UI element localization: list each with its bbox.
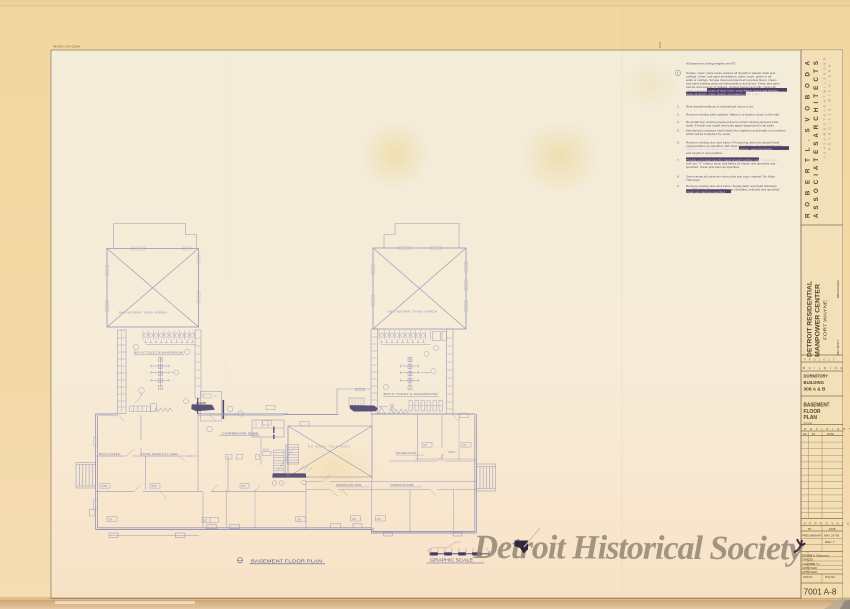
svg-text:Ritter T.: Ritter T. [825, 540, 835, 544]
svg-text:TRUNK ROOM & P.T. AREA: TRUNK ROOM & P.T. AREA [141, 452, 178, 456]
svg-text:46-WS-134-2054: 46-WS-134-2054 [53, 45, 80, 49]
svg-text:6.: 6. [677, 141, 680, 145]
svg-text:BY: BY [812, 432, 816, 436]
svg-text:NO: NO [803, 432, 807, 436]
svg-text:JOB NO.: JOB NO. [803, 576, 813, 579]
svg-text:SCALE: SCALE [804, 421, 813, 425]
svg-text:DATE: DATE [829, 527, 836, 531]
svg-text:FORT WAYNE: FORT WAYNE [823, 300, 828, 340]
svg-text:DETROIT RESIDENTIAL: DETROIT RESIDENTIAL [808, 281, 814, 357]
svg-text:307: 307 [203, 520, 208, 523]
svg-text:3.: 3. [677, 113, 680, 117]
svg-text:DETROIT: DETROIT [836, 339, 840, 355]
svg-text:BOILER ROOM: BOILER ROOM [396, 451, 417, 455]
svg-text:NO WORK THIS AREA: NO WORK THIS AREA [308, 445, 351, 449]
svg-text:9.: 9. [677, 184, 680, 188]
svg-text:D E T R O I T 1 9 , M I C: D E T R O I T 1 9 , M I C H I G A N [828, 65, 832, 150]
svg-text:A P P R O V A L S: A P P R O V A L S [804, 521, 850, 525]
svg-text:FLOOR: FLOOR [804, 409, 821, 415]
svg-text:BASEMENT: BASEMENT [804, 403, 831, 409]
svg-text:CORRIDOR 305B: CORRIDOR 305B [222, 431, 259, 435]
svg-text:2.: 2. [677, 105, 680, 109]
svg-text:APPROVED: APPROVED [802, 570, 817, 574]
svg-text:stalls. Provide and install n: stalls. Provide and install new toilet p… [686, 124, 775, 128]
svg-text:308 A & B: 308 A & B [804, 387, 826, 393]
svg-text:MANPOWER CENTER: MANPOWER CENTER [816, 283, 822, 357]
svg-text:A S S O C I A T E S A R C H: A S S O C I A T E S A R C H I T E C T S [813, 61, 820, 218]
svg-text:7.: 7. [677, 158, 680, 162]
svg-text:110.5: 110.5 [263, 449, 269, 452]
svg-text:5.: 5. [677, 129, 680, 133]
svg-text:Remove existing toilet partiti: Remove existing toilet partition. Make t… [686, 113, 780, 117]
svg-text:304: 304 [241, 485, 246, 488]
svg-text:305A: 305A [151, 485, 157, 488]
svg-text:1 0 4 5 6 W E S T E I G H: 1 0 4 5 6 W E S T E I G H T M I L E R O … [823, 58, 827, 158]
svg-text:New drywall partitions in mec: New drywall partitions in mechanical roo… [686, 105, 754, 109]
svg-text:BUILDING: BUILDING [804, 380, 825, 386]
svg-text:which will be furnished by own: which will be furnished by owner. [686, 132, 731, 136]
svg-text:B U I L D I N G: B U I L D I N G [803, 366, 844, 370]
svg-text:314: 314 [423, 444, 428, 447]
svg-text:and length of new partition.: and length of new partition. [686, 151, 723, 155]
svg-text:1.: 1. [677, 71, 680, 75]
svg-text:7001 A-8: 7001 A-8 [804, 587, 837, 597]
svg-text:305B: 305B [101, 485, 107, 488]
svg-text:R E V I S I O N S: R E V I S I O N S [804, 427, 850, 431]
svg-text:306: 306 [108, 518, 113, 521]
svg-text:4.: 4. [677, 120, 680, 124]
svg-text:All basement ceiling heights a: All basement ceiling heights are 8'6" [686, 62, 736, 66]
svg-text:PRELIMINARY: PRELIMINARY [802, 534, 822, 538]
svg-text:CORRIDOR 308B: CORRIDOR 308B [390, 483, 414, 487]
svg-text:clean all grouts, water closet: clean all grouts, water closets, and was… [686, 92, 760, 96]
svg-text:MICHIGAN: MICHIGAN [836, 280, 840, 298]
svg-text:DATE: DATE [827, 432, 834, 436]
svg-text:WASHROOM 305B: WASHROOM 305B [336, 483, 361, 487]
svg-text:MAY 29 '69: MAY 29 '69 [824, 534, 839, 538]
svg-text:310: 310 [377, 518, 382, 521]
svg-text:302: 302 [462, 444, 467, 447]
svg-text:309: 309 [352, 518, 357, 521]
svg-text:Clean and paint as specified.: Clean and paint as specified. [686, 190, 726, 194]
svg-text:BASEMENT FLOOR PLAN: BASEMENT FLOOR PLAN [251, 558, 322, 563]
svg-text:PLAN: PLAN [804, 415, 818, 421]
svg-text:GRAPHIC SCALE: GRAPHIC SCALE [430, 557, 473, 562]
svg-text:BY: BY [808, 527, 812, 531]
svg-text:NO WORK THIS AREA: NO WORK THIS AREA [119, 311, 167, 315]
svg-text:P R O J E C T: P R O J E C T [804, 357, 836, 361]
svg-text:308: 308 [297, 519, 302, 522]
svg-text:FILE NO.: FILE NO. [825, 576, 836, 579]
svg-text:BOYS LOCKER: BOYS LOCKER [99, 452, 120, 456]
svg-text:8.: 8. [677, 175, 680, 179]
svg-text:COAL: COAL [448, 450, 456, 454]
svg-text:This Area".: This Area". [686, 178, 701, 182]
svg-text:BOYS TOILET & WASHROOM: BOYS TOILET & WASHROOM [134, 350, 184, 354]
svg-text:BOYS TOILET & WASHROOM: BOYS TOILET & WASHROOM [384, 392, 439, 396]
svg-text:specified. Clean and paint as: specified. Clean and paint as specified. [686, 165, 740, 169]
svg-text:DORMITORY: DORMITORY [804, 374, 829, 380]
svg-text:NO WORK THIS AREA: NO WORK THIS AREA [388, 310, 438, 314]
